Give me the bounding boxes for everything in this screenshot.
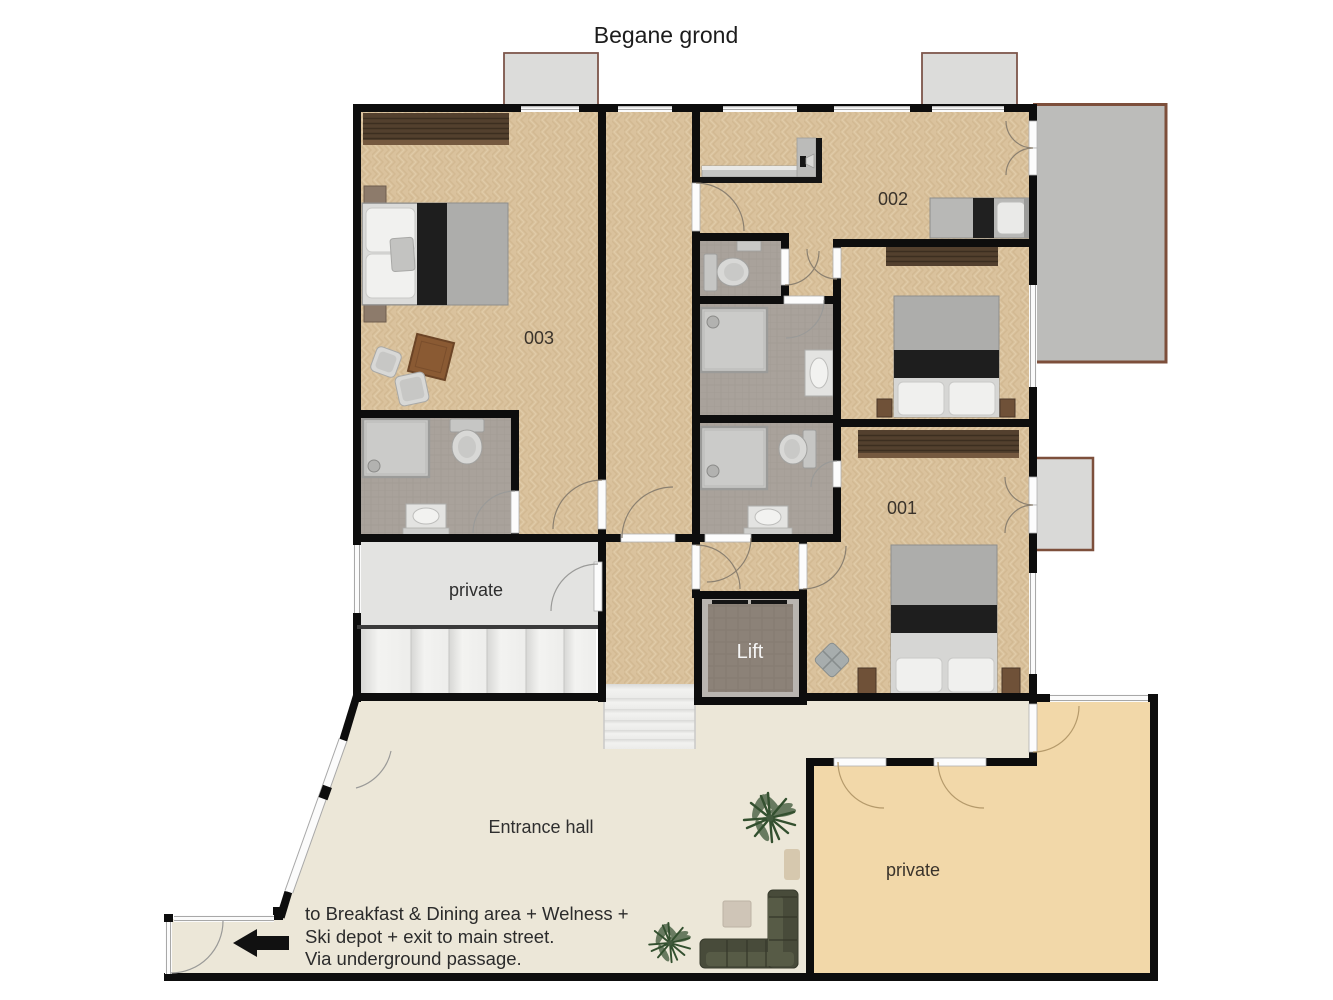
svg-text:002: 002 [878, 189, 908, 209]
svg-text:001: 001 [887, 498, 917, 518]
svg-text:Begane grond: Begane grond [594, 22, 739, 48]
svg-text:Via underground passage.: Via underground passage. [305, 948, 522, 969]
svg-text:private: private [449, 580, 503, 600]
svg-text:to Breakfast & Dining area + W: to Breakfast & Dining area + Welness + [305, 903, 629, 924]
svg-text:Ski depot + exit to main stree: Ski depot + exit to main street. [305, 926, 554, 947]
svg-text:Lift: Lift [737, 641, 764, 663]
svg-text:003: 003 [524, 328, 554, 348]
svg-text:private: private [886, 860, 940, 880]
svg-text:Entrance hall: Entrance hall [488, 817, 593, 837]
